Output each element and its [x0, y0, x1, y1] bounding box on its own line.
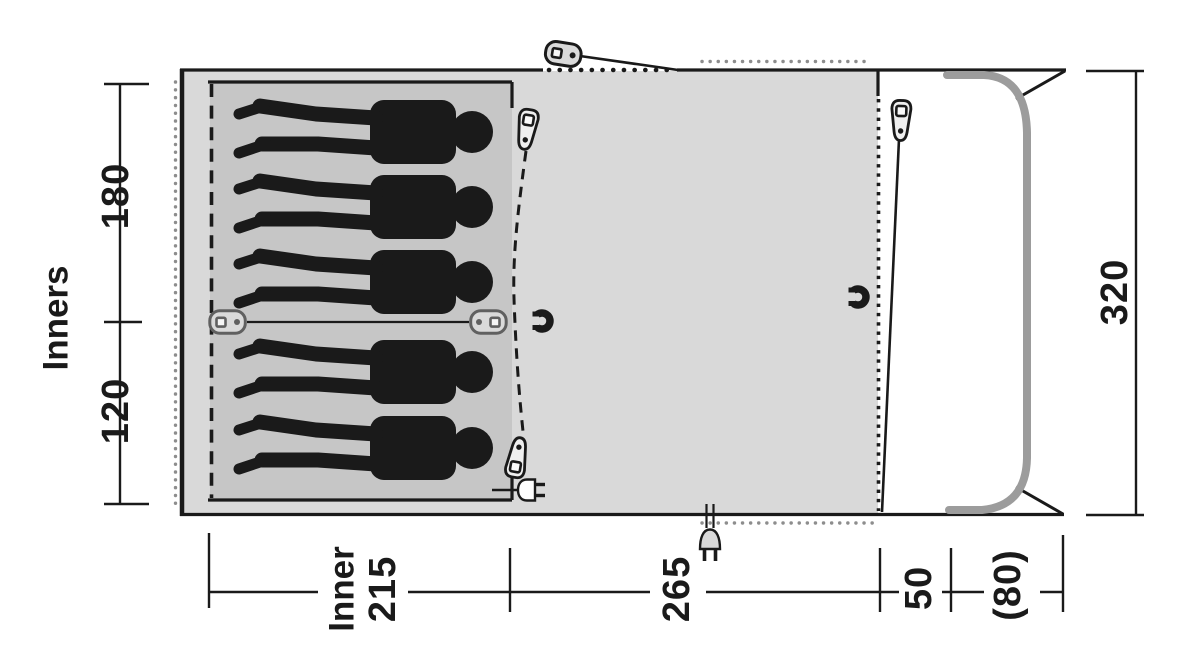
guyline-toggle-icon	[544, 40, 583, 68]
floorplan-canvas: Inners 180 120 Inner 215 265 50 (80) 320	[0, 0, 1200, 666]
label-265: 265	[656, 556, 698, 622]
label-80: (80)	[987, 549, 1029, 621]
zipper-pull-icon-front-door	[891, 100, 911, 141]
label-inners: Inners	[37, 265, 76, 370]
front-door-zip-line	[882, 139, 899, 512]
front-pole	[947, 75, 1027, 510]
corner-guy-top	[1016, 71, 1065, 99]
label-120: 120	[95, 378, 137, 444]
label-180: 180	[95, 163, 137, 229]
label-inner-word: Inner	[323, 546, 362, 632]
label-50: 50	[898, 566, 940, 610]
guyline-top	[580, 56, 678, 70]
tent-floorplan-diagram: Inners 180 120 Inner 215 265 50 (80) 320	[0, 0, 1200, 666]
label-320: 320	[1094, 259, 1136, 325]
tieback-toggle-right-icon	[471, 311, 507, 334]
label-215: 215	[362, 556, 404, 622]
tieback-toggle-left-icon	[210, 311, 246, 334]
